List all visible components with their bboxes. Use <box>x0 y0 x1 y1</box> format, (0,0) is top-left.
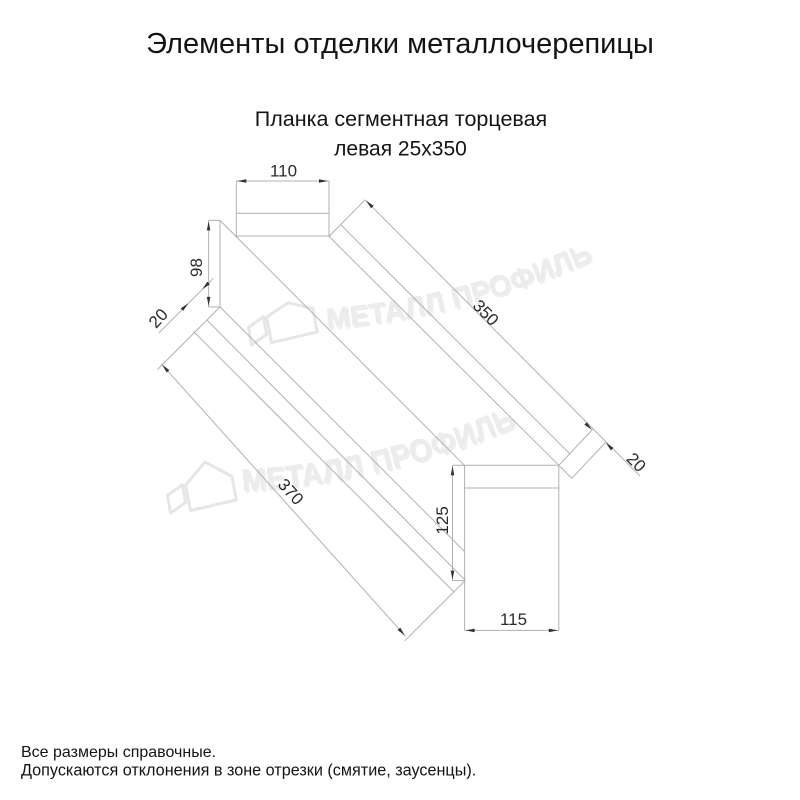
svg-text:Допускаются отклонения в зоне: Допускаются отклонения в зоне отрезки (с… <box>21 762 476 780</box>
svg-text:Элементы отделки металлочерепи: Элементы отделки металлочерепицы <box>146 28 654 60</box>
svg-text:Все размеры справочные.: Все размеры справочные. <box>21 744 216 761</box>
svg-text:левая 25х350: левая 25х350 <box>334 138 467 161</box>
svg-text:110: 110 <box>270 162 297 181</box>
svg-text:125: 125 <box>433 506 452 534</box>
svg-text:98: 98 <box>187 258 206 277</box>
svg-text:115: 115 <box>500 610 527 629</box>
svg-text:Планка сегментная торцевая: Планка сегментная торцевая <box>255 107 547 131</box>
